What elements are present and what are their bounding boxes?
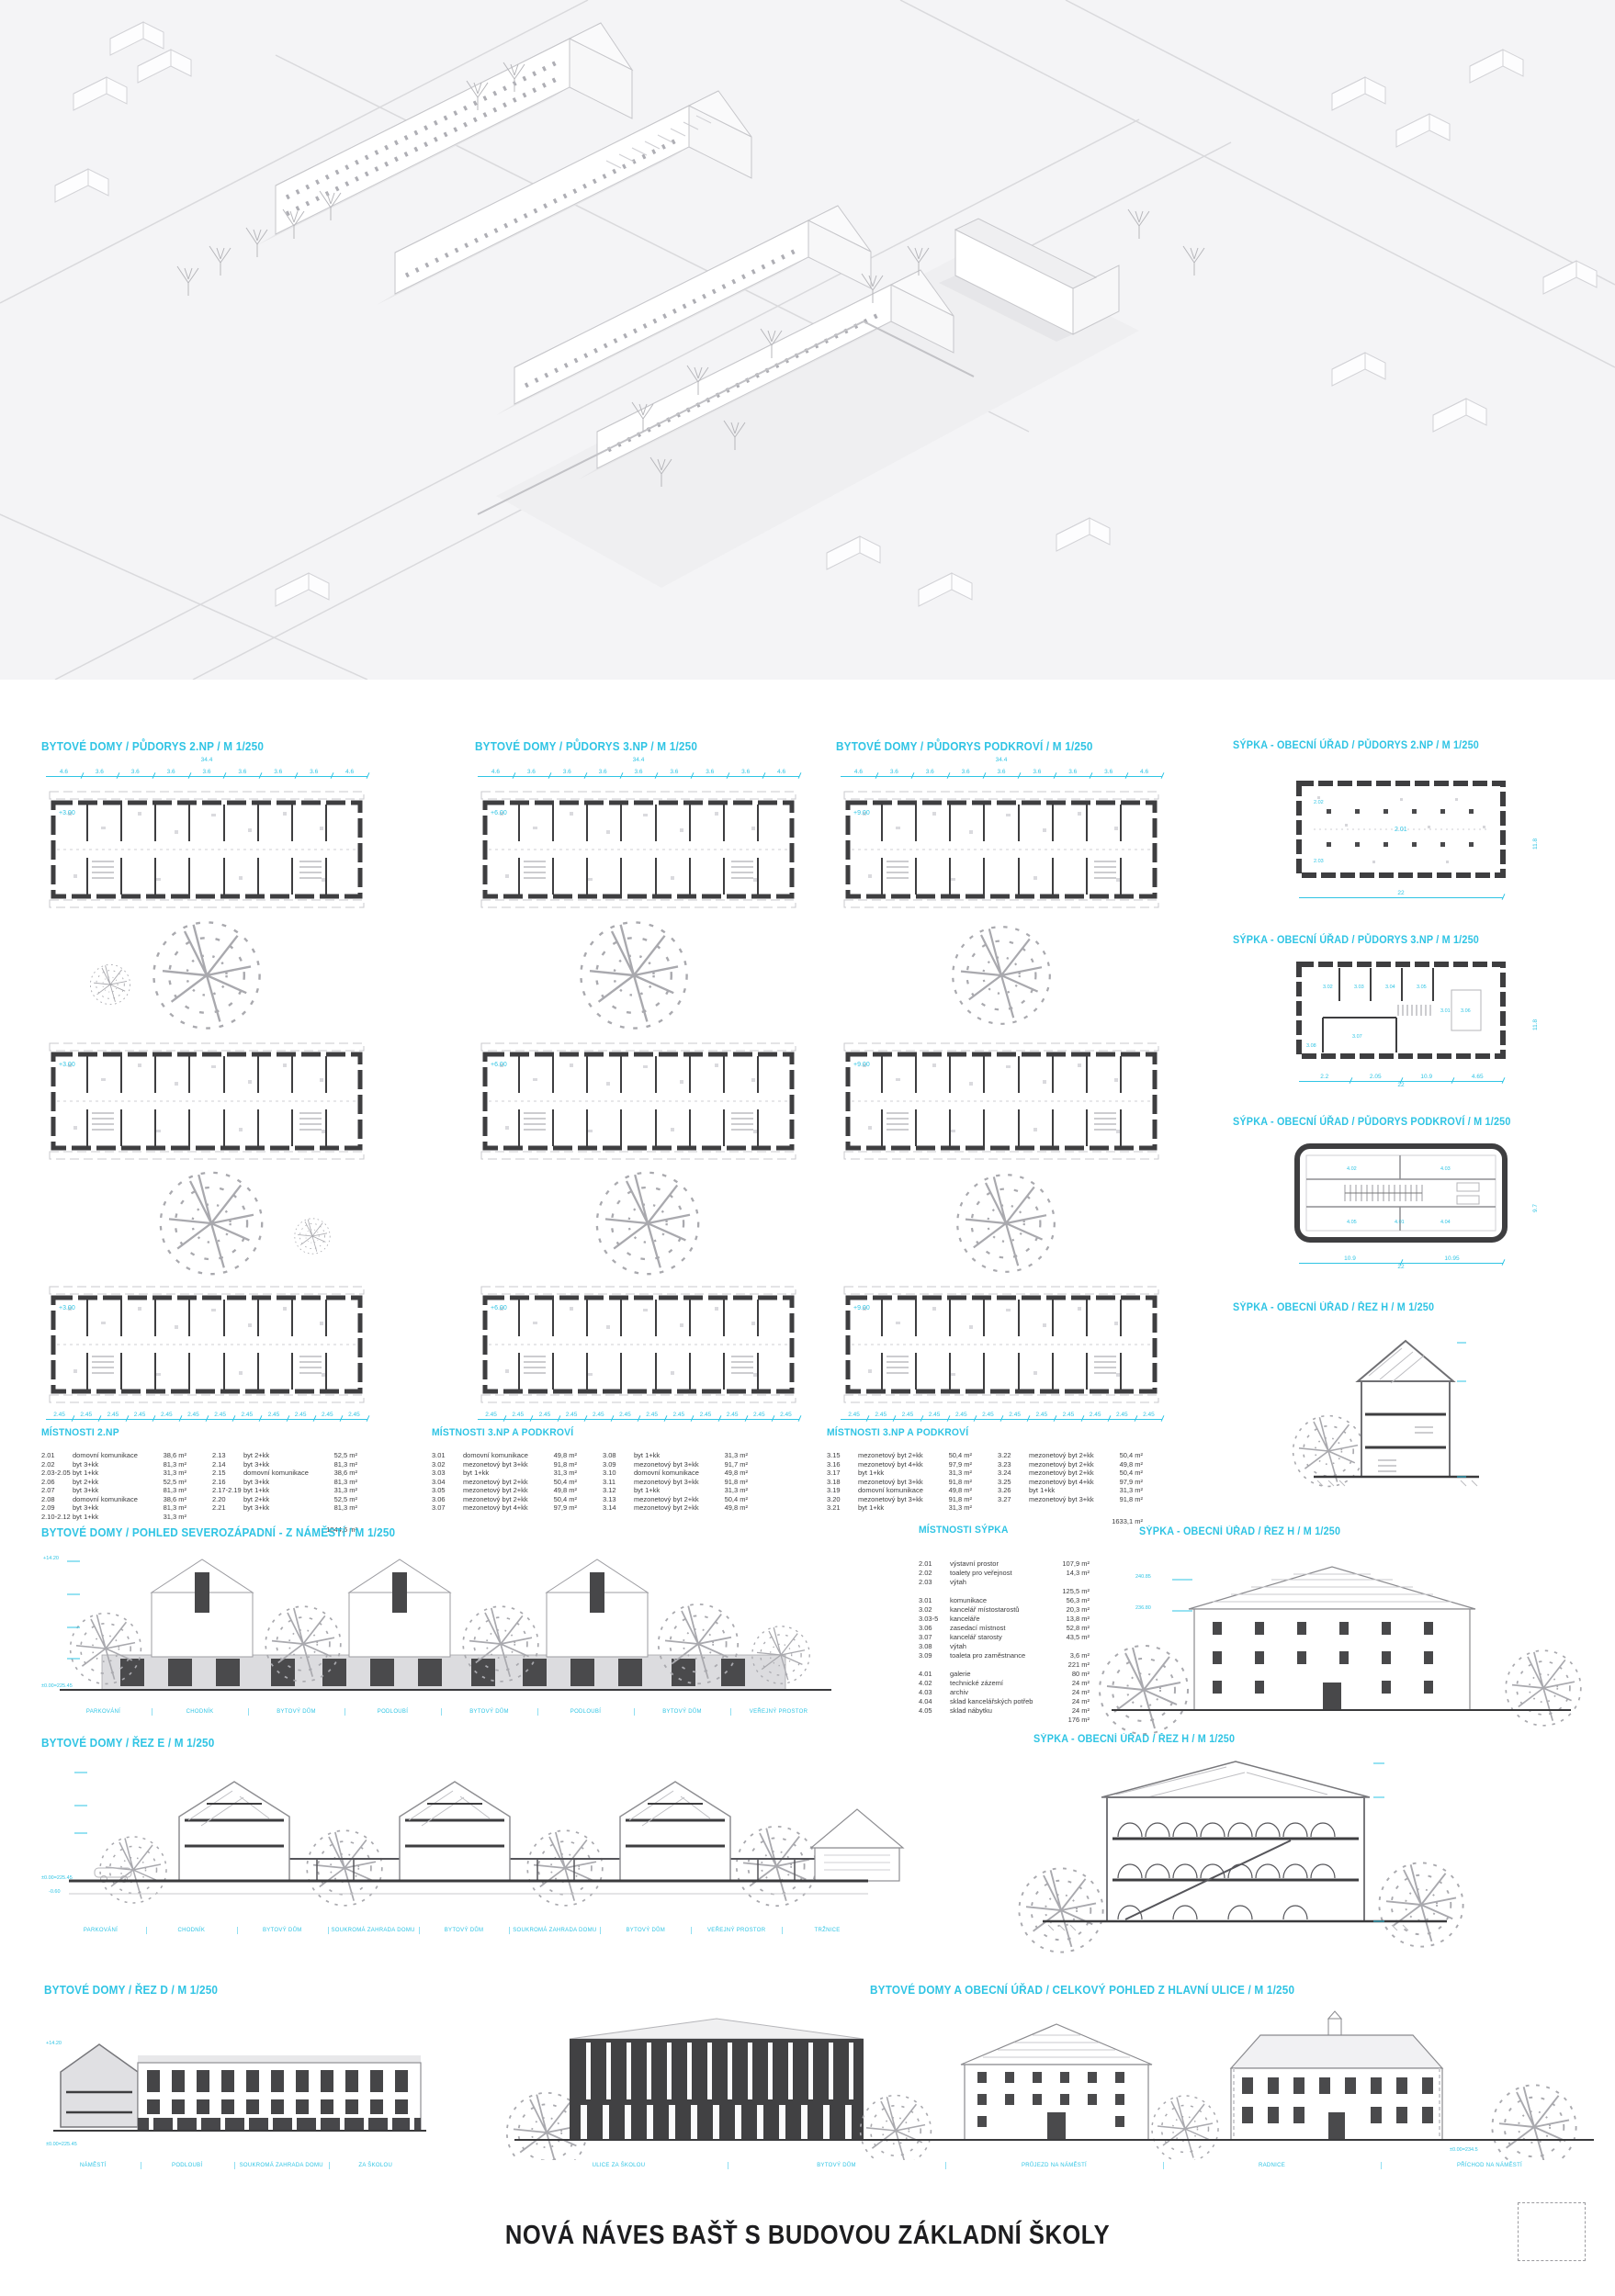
room-label: 2.03 (1314, 859, 1324, 864)
table-row: 3.07mezonetový byt 4+kk97,9 m² (432, 1503, 577, 1513)
dim-value: 2.45 (921, 1412, 948, 1420)
room-name: mezonetový byt 2+kk (463, 1486, 538, 1495)
section-title-sypka-rez-h-b: SÝPKA - OBECNÍ ÚŘAD / ŘEZ H / M 1/250 (1033, 1734, 1235, 1745)
plan-strip: +9.00 (841, 790, 1162, 909)
dim-value: 4.6 (46, 769, 82, 777)
dim-value: 2.45 (612, 1412, 638, 1420)
room-name: domovní komunikace (73, 1495, 148, 1504)
level-mark: ±0.00=234.5 (1450, 2147, 1478, 2153)
table-row: 2.02byt 3+kk81,3 m² (41, 1460, 186, 1469)
room-name: technické zázemí (950, 1679, 1051, 1688)
room-name: byt 3+kk (73, 1460, 148, 1469)
sypka-plan-2np: 2.01 2.02 2.03 (1286, 776, 1525, 886)
room-name: mezonetový byt 2+kk (1029, 1460, 1104, 1469)
table-row: 3.06zasedací místnost52,8 m² (919, 1624, 1090, 1633)
table-row: 3.11mezonetový byt 3+kk91,8 m² (603, 1478, 748, 1487)
dim-value: 2.45 (1055, 1412, 1081, 1420)
zone-label: BYTOVÝ DŮM (237, 1925, 328, 1936)
room-number: 3.18 (827, 1478, 858, 1487)
zone-label: CHODNÍK (152, 1706, 248, 1717)
dim-value: 3.6 (912, 769, 948, 777)
tree-sketch (161, 1173, 262, 1274)
dim-value: 3.6 (656, 769, 692, 777)
dim-value: 4.6 (332, 769, 367, 777)
dim-value: 2.45 (1028, 1412, 1055, 1420)
room-number: 3.13 (603, 1495, 634, 1504)
dim-value: 2.45 (975, 1412, 1001, 1420)
dim-total: 34.4 (46, 757, 367, 763)
level-mark: 240.85 (1135, 1574, 1151, 1580)
room-label: 3.08 (1306, 1043, 1316, 1049)
table-row: 3.23mezonetový byt 2+kk49,8 m² (998, 1460, 1143, 1469)
celkovy-pohled-drawing: ±0.00=234.5 (505, 2004, 1603, 2160)
level-mark: +9.00 (853, 1062, 870, 1068)
room-number: 3.04 (432, 1478, 463, 1487)
room-number: 2.17-2.19 (212, 1486, 243, 1495)
room-name: kancelář místostarostů (950, 1605, 1051, 1615)
zone-label: BYTOVÝ DŮM (441, 1706, 537, 1717)
dim-value: 4.6 (1126, 769, 1162, 777)
house-section (179, 1782, 289, 1881)
level-mark: +6.00 (491, 810, 507, 816)
room-name: domovní komunikace (73, 1451, 148, 1460)
room-number: 3.08 (919, 1642, 950, 1651)
room-number: 2.14 (212, 1460, 243, 1469)
zone-label: SOUKROMÁ ZAHRADA DOMU (509, 1925, 600, 1936)
room-name: byt 3+kk (73, 1486, 148, 1495)
room-number: 3.08 (603, 1451, 634, 1460)
room-area: 31,3 m² (1104, 1486, 1143, 1495)
dim-value: 2.45 (638, 1412, 665, 1420)
room-name: mezonetový byt 2+kk (1029, 1451, 1104, 1460)
room-number: 3.09 (919, 1651, 950, 1660)
room-name: mezonetový byt 2+kk (463, 1478, 538, 1487)
room-area: 91,8 m² (933, 1478, 972, 1487)
dim-value: 2.45 (260, 1412, 287, 1420)
room-name: galerie (950, 1670, 1051, 1679)
zone-label: PARKOVÁNÍ (55, 1925, 146, 1936)
room-area: 31,3 m² (319, 1486, 357, 1495)
dim-value: 2.45 (46, 1412, 73, 1420)
dim-row: 2.22.0510.94.65 (1299, 1071, 1503, 1082)
room-area: 31,3 m² (709, 1451, 748, 1460)
room-area: 81,3 m² (148, 1486, 186, 1495)
table-row: 221 m² (919, 1660, 1090, 1670)
zone-label: PODLOUBÍ (537, 1706, 634, 1717)
dim-value: 3.6 (189, 769, 225, 777)
dim-value: 2.45 (948, 1412, 975, 1420)
section-labels: ULICE ZA ŠKOLOUBYTOVÝ DŮMPRŮJEZD NA NÁMĚ… (510, 2160, 1598, 2171)
level-mark: ±0.00=225.45 (46, 2142, 77, 2147)
zone-label: PARKOVÁNÍ (55, 1706, 152, 1717)
courtyard-trees (478, 911, 799, 1040)
room-label: 4.03 (1440, 1166, 1451, 1172)
room-area: 52,5 m² (319, 1495, 357, 1504)
tree-sketch (957, 1175, 1055, 1272)
house-section (400, 1782, 510, 1881)
dim-value: 3.6 (876, 769, 912, 777)
room-name: výstavní prostor (950, 1559, 1051, 1569)
room-name: byt 3+kk (243, 1478, 319, 1487)
dim-value: 4.6 (478, 769, 514, 777)
level-mark: -0.60 (49, 1889, 61, 1895)
room-name: výtah (950, 1642, 1051, 1651)
dim-side: 9.7 (1532, 1204, 1539, 1212)
room-area: 38,6 m² (148, 1495, 186, 1504)
room-number: 3.20 (827, 1495, 858, 1504)
room-number: 4.04 (919, 1697, 950, 1706)
level-mark: +6.00 (491, 1305, 507, 1311)
sypka-rez-h-elevation-drawing: 240.85 236.80 (1084, 1552, 1598, 1736)
plan-title-bd-3np: BYTOVÉ DOMY / PŮDORYS 3.NP / M 1/250 (475, 740, 697, 753)
room-label: 3.02 (1323, 985, 1333, 990)
dim-row: 2.452.452.452.452.452.452.452.452.452.45… (46, 1409, 367, 1420)
dim-row: 4.63.63.63.63.63.63.63.64.6 (478, 766, 799, 777)
room-number: 2.03-2.05 (41, 1469, 73, 1478)
room-label: 3.01 (1440, 1008, 1451, 1014)
room-number: 3.01 (919, 1596, 950, 1605)
sypka-section-drawing (1277, 1322, 1534, 1520)
room-name: byt 2+kk (73, 1478, 148, 1487)
room-name: sklad kancelářských potřeb (950, 1697, 1051, 1706)
table-row: 2.16byt 3+kk81,3 m² (212, 1478, 357, 1487)
dim-value: 2.45 (153, 1412, 180, 1420)
room-name: byt 1+kk (858, 1469, 933, 1478)
room-name: mezonetový byt 3+kk (463, 1460, 538, 1469)
tree-sketch (1152, 2096, 1218, 2160)
dim-value: 3.6 (296, 769, 332, 777)
plan-title-bd-2np: BYTOVÉ DOMY / PŮDORYS 2.NP / M 1/250 (41, 740, 264, 753)
plan-strip: +3.00 (46, 1041, 367, 1161)
rez-d-drawing: +14.20 ±0.00=225.45 (44, 2008, 430, 2160)
table-row: 2.15domovní komunikace38,6 m² (212, 1469, 357, 1478)
room-name: byt 1+kk (634, 1451, 709, 1460)
section-title-rez-d: BYTOVÉ DOMY / ŘEZ D / M 1/250 (44, 1984, 218, 1997)
room-area: 52,5 m² (319, 1451, 357, 1460)
table-row: 2.17-2.19byt 1+kk31,3 m² (212, 1486, 357, 1495)
room-name: mezonetový byt 3+kk (858, 1478, 933, 1487)
room-name: byt 3+kk (243, 1503, 319, 1513)
room-number: 3.19 (827, 1486, 858, 1495)
room-number: 3.27 (998, 1495, 1029, 1504)
room-name: výtah (950, 1578, 1051, 1587)
room-area: 38,6 m² (319, 1469, 357, 1478)
table-row: 3.27mezonetový byt 3+kk91,8 m² (998, 1495, 1143, 1504)
dim-value: 4.65 (1452, 1074, 1504, 1082)
dim-value: 2.45 (665, 1412, 692, 1420)
zone-label: PODLOUBÍ (344, 1706, 441, 1717)
room-area: 91,7 m² (709, 1460, 748, 1469)
room-number: 3.02 (432, 1460, 463, 1469)
tree-sketch (953, 927, 1050, 1024)
room-area: 49,8 m² (538, 1451, 577, 1460)
room-number: 2.16 (212, 1478, 243, 1487)
dim-value: 2.45 (1135, 1412, 1162, 1420)
room-name (950, 1716, 1051, 1725)
room-name: byt 1+kk (634, 1486, 709, 1495)
room-number: 3.07 (919, 1633, 950, 1642)
table-row: 2.10-2.12byt 1+kk31,3 m² (41, 1513, 186, 1522)
room-area: 91,8 m² (1104, 1495, 1143, 1504)
dim-value: 3.6 (153, 769, 189, 777)
room-number: 3.15 (827, 1451, 858, 1460)
zone-label: BYTOVÝ DŮM (419, 1925, 510, 1936)
plan-strip: +6.00 (478, 1041, 799, 1161)
room-number: 2.02 (919, 1569, 950, 1578)
table-row: 3.14mezonetový byt 2+kk49,8 m² (603, 1503, 748, 1513)
table-row: 2.01domovní komunikace38,6 m² (41, 1451, 186, 1460)
room-area: 50,4 m² (933, 1451, 972, 1460)
axonometric-render (0, 0, 1615, 680)
room-area: 31,3 m² (933, 1503, 972, 1513)
room-area: 81,3 m² (319, 1460, 357, 1469)
dim-value: 2.45 (746, 1412, 773, 1420)
tree-sketch (153, 922, 259, 1028)
dim-value: 3.6 (82, 769, 118, 777)
room-name: mezonetový byt 3+kk (1029, 1495, 1104, 1504)
room-name: mezonetový byt 3+kk (634, 1460, 709, 1469)
table-row: 3.09mezonetový byt 3+kk91,7 m² (603, 1460, 748, 1469)
room-name: kancelář starosty (950, 1633, 1051, 1642)
table-row: 3.21byt 1+kk31,3 m² (827, 1503, 972, 1513)
room-name: byt 1+kk (243, 1486, 319, 1495)
room-name: sklad nábytku (950, 1706, 1051, 1716)
table-row: 3.15mezonetový byt 2+kk50,4 m² (827, 1451, 972, 1460)
table-row: 3.13mezonetový byt 2+kk50,4 m² (603, 1495, 748, 1504)
plan-title-bd-pod: BYTOVÉ DOMY / PŮDORYS PODKROVÍ / M 1/250 (836, 740, 1093, 753)
table-row: 3.04mezonetový byt 2+kk50,4 m² (432, 1478, 577, 1487)
room-area: 31,3 m² (933, 1469, 972, 1478)
zone-label: VEŘEJNÝ PROSTOR (730, 1706, 827, 1717)
tree-sketch (1100, 1646, 1188, 1734)
dim-total: 34.4 (478, 757, 799, 763)
plan-strip: +3.00 (46, 790, 367, 909)
table-row: 3.08byt 1+kk31,3 m² (603, 1451, 748, 1460)
courtyard-trees (478, 1163, 799, 1283)
courtyard-trees (46, 1163, 367, 1283)
room-name: byt 3+kk (73, 1503, 148, 1513)
room-number: 3.11 (603, 1478, 634, 1487)
level-mark: ±0.00=225.45 (41, 1683, 73, 1689)
room-number: 2.20 (212, 1495, 243, 1504)
dim-value: 4.6 (841, 769, 876, 777)
section-title-pohled-sz: BYTOVÉ DOMY / POHLED SEVEROZÁPADNÍ - Z N… (41, 1526, 395, 1539)
room-number: 3.22 (998, 1451, 1029, 1460)
plan-title-sypka-3np: SÝPKA - OBECNÍ ÚŘAD / PŮDORYS 3.NP / M 1… (1233, 935, 1479, 946)
tree-sketch (1379, 1863, 1463, 1946)
tree-sketch (581, 922, 686, 1028)
table-row: 4.01galerie80 m² (919, 1670, 1090, 1679)
dim-value: 3.6 (585, 769, 621, 777)
room-area: 81,3 m² (319, 1478, 357, 1487)
tree-sketch (1019, 1868, 1102, 1952)
plan-strip: +9.00 (841, 1041, 1162, 1161)
room-number: 4.05 (919, 1706, 950, 1716)
table-row: 3.02mezonetový byt 3+kk91,8 m² (432, 1460, 577, 1469)
level-mark: +14.20 (43, 1556, 59, 1561)
dim-value: 2.45 (719, 1412, 746, 1420)
room-number: 4.02 (919, 1679, 950, 1688)
dim-value: 3.6 (1019, 769, 1055, 777)
zone-label: BYTOVÝ DŮM (600, 1925, 691, 1936)
tree-sketch (527, 1830, 603, 1906)
sypka-plan-podkrovi: 4.02 4.03 4.01 4.05 4.04 (1286, 1139, 1525, 1251)
dim-value: 2.45 (894, 1412, 920, 1420)
table-row: 2.06byt 2+kk52,5 m² (41, 1478, 186, 1487)
table-row: 2.20byt 2+kk52,5 m² (212, 1495, 357, 1504)
level-mark: +9.00 (853, 810, 870, 816)
zone-label: BYTOVÝ DŮM (728, 2160, 945, 2171)
room-number: 2.08 (41, 1495, 73, 1504)
room-number: 2.13 (212, 1451, 243, 1460)
radnice-elevation (961, 2024, 1152, 2140)
dim-value: 2.45 (585, 1412, 612, 1420)
dim-value: 3.6 (224, 769, 260, 777)
tree-sketch (861, 2096, 932, 2160)
room-area: 50,4 m² (709, 1495, 748, 1504)
room-number: 3.16 (827, 1460, 858, 1469)
table-row: 2.14byt 3+kk81,3 m² (212, 1460, 357, 1469)
room-name: kanceláře (950, 1615, 1051, 1624)
plan-strip: +9.00 (841, 1285, 1162, 1404)
room-name (950, 1587, 1051, 1596)
table-row: 3.03-5kanceláře13,8 m² (919, 1615, 1090, 1624)
room-name: byt 1+kk (73, 1469, 148, 1478)
house-section (620, 1782, 730, 1881)
dim-value: 2.45 (73, 1412, 99, 1420)
level-mark: +3.00 (59, 1062, 75, 1068)
dim-value: 2.45 (531, 1412, 558, 1420)
courtyard-trees (841, 911, 1162, 1040)
section-title-rez-e: BYTOVÉ DOMY / ŘEZ E / M 1/250 (41, 1737, 215, 1750)
room-name: byt 2+kk (243, 1451, 319, 1460)
gable-house (547, 1559, 648, 1657)
room-area: 50,4 m² (538, 1495, 577, 1504)
room-number: 3.06 (919, 1624, 950, 1633)
dim-value: 22 (1299, 890, 1503, 898)
room-number: 2.01 (919, 1559, 950, 1569)
room-area: 49,8 m² (709, 1469, 748, 1478)
room-number: 3.05 (432, 1486, 463, 1495)
table-row: 4.05sklad nábytku24 m² (919, 1706, 1090, 1716)
plan-strip: +6.00 (478, 790, 799, 909)
table-row: 3.12byt 1+kk31,3 m² (603, 1486, 748, 1495)
room-area: 81,3 m² (148, 1503, 186, 1513)
tree-sketch (597, 1173, 698, 1274)
room-number: 2.06 (41, 1478, 73, 1487)
table-row: 3.01komunikace56,3 m² (919, 1596, 1090, 1605)
room-name: toaleta pro zaměstnance (950, 1651, 1051, 1660)
room-name: mezonetový byt 3+kk (634, 1478, 709, 1487)
room-name: mezonetový byt 2+kk (634, 1503, 709, 1513)
room-name: byt 1+kk (1029, 1486, 1104, 1495)
dim-value: 2.45 (1109, 1412, 1135, 1420)
room-area: 91,8 m² (933, 1495, 972, 1504)
rooms-table-3np-b: MÍSTNOSTI 3.NP A PODKROVÍ 3.15mezonetový… (827, 1427, 1143, 1525)
room-number: 2.21 (212, 1503, 243, 1513)
skola-elevation (1231, 2011, 1442, 2140)
room-label: 3.06 (1461, 1008, 1471, 1014)
plan-title-sypka-2np: SÝPKA - OBECNÍ ÚŘAD / PŮDORYS 2.NP / M 1… (1233, 740, 1479, 751)
room-label: 4.04 (1440, 1220, 1451, 1225)
dim-side: 11.8 (1532, 838, 1539, 850)
dim-value: 2.45 (233, 1412, 260, 1420)
room-name: byt 1+kk (858, 1503, 933, 1513)
zone-label: BYTOVÝ DŮM (248, 1706, 344, 1717)
room-area: 49,8 m² (933, 1486, 972, 1495)
dim-value: 2.45 (1001, 1412, 1028, 1420)
dim-value: 3.6 (549, 769, 585, 777)
dim-value: 10.95 (1401, 1255, 1503, 1264)
level-mark: 236.80 (1135, 1605, 1151, 1611)
table-row: 125,5 m² (919, 1587, 1090, 1596)
level-mark: +14.20 (46, 2041, 62, 2046)
table-row: 3.18mezonetový byt 3+kk91,8 m² (827, 1478, 972, 1487)
table-row: 2.03-2.05byt 1+kk31,3 m² (41, 1469, 186, 1478)
dim-value: 3.6 (984, 769, 1020, 777)
room-name: mezonetový byt 2+kk (634, 1495, 709, 1504)
dim-value: 2.45 (314, 1412, 341, 1420)
table-row: 3.16mezonetový byt 4+kk97,9 m² (827, 1460, 972, 1469)
table-row: 3.24mezonetový byt 2+kk50,4 m² (998, 1469, 1143, 1478)
table-row: 2.09byt 3+kk81,3 m² (41, 1503, 186, 1513)
table-row: 3.26byt 1+kk31,3 m² (998, 1486, 1143, 1495)
room-number (919, 1587, 950, 1596)
room-area: 31,3 m² (538, 1469, 577, 1478)
tree-sketch (307, 1830, 382, 1906)
room-name: archiv (950, 1688, 1051, 1697)
room-area: 52,5 m² (148, 1478, 186, 1487)
dim-value: 2.45 (559, 1412, 585, 1420)
table-row: 3.17byt 1+kk31,3 m² (827, 1469, 972, 1478)
gable-house (349, 1559, 450, 1657)
room-number: 3.03-5 (919, 1615, 950, 1624)
room-label: 3.07 (1352, 1034, 1362, 1040)
room-number: 4.01 (919, 1670, 950, 1679)
room-number: 3.06 (432, 1495, 463, 1504)
room-number: 2.02 (41, 1460, 73, 1469)
room-name: byt 1+kk (73, 1513, 148, 1522)
room-label: 2.01 (1395, 827, 1407, 833)
rez-e-drawing: ±0.00=225.45 -0.60 (41, 1760, 923, 1923)
table-row: 2.13byt 2+kk52,5 m² (212, 1451, 357, 1460)
sypka-rez-h-section-drawing (988, 1756, 1502, 1972)
room-name: mezonetový byt 4+kk (858, 1460, 933, 1469)
room-area: 50,4 m² (1104, 1451, 1143, 1460)
presentation-board: BYTOVÉ DOMY / PŮDORYS 2.NP / M 1/250 BYT… (0, 0, 1615, 2296)
elevation-labels: PARKOVÁNÍCHODNÍKBYTOVÝ DŮMPODLOUBÍBYTOVÝ… (55, 1706, 827, 1717)
dim-value: 2.45 (341, 1412, 367, 1420)
room-name: toalety pro veřejnost (950, 1569, 1051, 1578)
table-row: 3.07kancelář starosty43,5 m² (919, 1633, 1090, 1642)
plan-strip: +3.00 (46, 1285, 367, 1404)
room-area: 31,3 m² (148, 1513, 186, 1522)
dim-value: 3.6 (1055, 769, 1090, 777)
room-area: 49,8 m² (1104, 1460, 1143, 1469)
room-number: 2.09 (41, 1503, 73, 1513)
table-title: MÍSTNOSTI 2.NP (41, 1427, 338, 1438)
table-row: 4.02technické zázemí24 m² (919, 1679, 1090, 1688)
room-label: 4.02 (1347, 1166, 1357, 1172)
dim-row: 2.452.452.452.452.452.452.452.452.452.45… (841, 1409, 1162, 1420)
zone-label: RADNICE (1163, 2160, 1381, 2171)
dim-row: 2.452.452.452.452.452.452.452.452.452.45… (478, 1409, 799, 1420)
zone-label: BYTOVÝ DŮM (634, 1706, 730, 1717)
room-name: domovní komunikace (243, 1469, 319, 1478)
table-row: 3.03byt 1+kk31,3 m² (432, 1469, 577, 1478)
room-number: 3.21 (827, 1503, 858, 1513)
dim-value: 10.9 (1401, 1074, 1452, 1082)
